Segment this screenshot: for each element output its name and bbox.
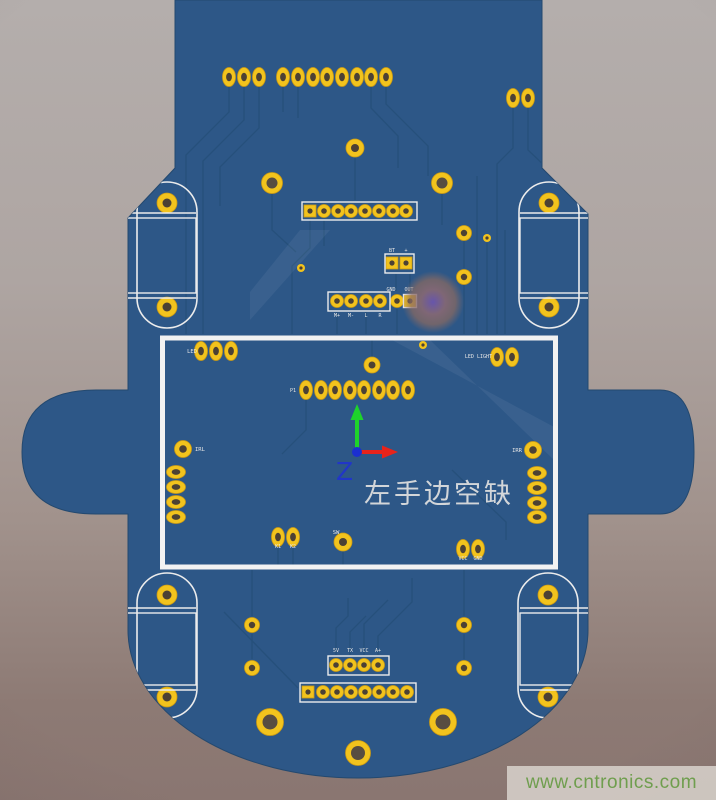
pad-hole (509, 353, 515, 362)
pad-hole (351, 746, 365, 760)
pad-hole (363, 298, 369, 304)
pad-hole (228, 347, 234, 356)
silk-label: L (364, 313, 367, 319)
pad-hole (179, 445, 187, 453)
pad-hole (351, 144, 359, 152)
pad-hole (256, 73, 262, 82)
watermark: www.cntronics.com (507, 766, 716, 800)
pad-hole (390, 689, 396, 695)
silk-label: BT (389, 248, 395, 254)
pad-hole (163, 693, 172, 702)
pad-hole (226, 73, 232, 82)
silk-label: GND (386, 287, 395, 293)
pad-hole (403, 260, 408, 265)
pad-hole (321, 208, 327, 214)
pad-hole (544, 591, 553, 600)
pcb-3d-viewport[interactable]: LEDLED LIGHTIRLIRRSWGNDOUTBT+M+M-LR5VTXV… (0, 0, 716, 800)
silk-label: M+ (334, 313, 340, 319)
pad-hole (263, 715, 278, 730)
pad-hole (375, 662, 381, 668)
pad-hole (510, 94, 516, 103)
z-axis-origin-dot (352, 447, 362, 457)
pad-hole (241, 73, 247, 82)
pad-hole (172, 499, 181, 505)
pad-hole (318, 386, 324, 395)
pad-hole (172, 514, 181, 520)
pad-hole (310, 73, 316, 82)
pad-hole (249, 665, 255, 671)
pad-hole (533, 514, 542, 520)
pad-hole (334, 298, 340, 304)
pad-hole (529, 446, 537, 454)
pad-hole (533, 485, 542, 491)
silk-label: VCC (359, 648, 368, 654)
silk-label: IRR (512, 448, 523, 454)
pad-hole (461, 230, 467, 236)
pad-hole (335, 208, 341, 214)
pad-hole (172, 469, 181, 475)
pad-hole (249, 622, 255, 628)
silk-label: LED LIGHT (465, 354, 492, 360)
pad-hole (376, 386, 382, 395)
pad-hole (533, 470, 542, 476)
pad-hole (333, 662, 339, 668)
pad-hole (339, 73, 345, 82)
pad-hole (163, 199, 172, 208)
silk-label: K2 (290, 544, 296, 550)
pad-hole (198, 347, 204, 356)
silk-label: P1 (290, 388, 296, 394)
pad-hole (213, 347, 219, 356)
pad-hole (394, 298, 400, 304)
pad-hole (368, 73, 374, 82)
pad-hole (348, 208, 354, 214)
pad-hole (332, 386, 338, 395)
board-canvas: LEDLED LIGHTIRLIRRSWGNDOUTBT+M+M-LR5VTXV… (0, 0, 716, 800)
silk-label: TX (347, 648, 353, 654)
pad-hole (383, 73, 389, 82)
silk-label: K1 (275, 544, 281, 550)
z-axis-label: Z (336, 457, 353, 486)
annotation-text: 左手边空缺 (364, 479, 514, 510)
pad-hole (295, 73, 301, 82)
pad-hole (267, 178, 278, 189)
pad-hole (362, 689, 368, 695)
pad-hole (376, 689, 382, 695)
pad-hole (163, 591, 172, 600)
pad-hole (525, 94, 531, 103)
pad-hole (461, 274, 467, 280)
silk-label: M- (348, 313, 354, 319)
pad-hole (377, 298, 383, 304)
pad-hole (303, 386, 309, 395)
pad-hole (533, 500, 542, 506)
pad-hole (404, 689, 410, 695)
pad-hole (405, 386, 411, 395)
pad-hole (172, 484, 181, 490)
pad-hole (544, 693, 553, 702)
pad-hole (545, 303, 554, 312)
pad-hole (460, 545, 466, 554)
via-hole (485, 236, 488, 239)
pad-hole (390, 386, 396, 395)
pad-hole (348, 689, 354, 695)
pad-hole (339, 538, 347, 546)
pad-hole (461, 622, 467, 628)
pad-hole (354, 73, 360, 82)
pad-hole (475, 545, 481, 554)
pad-hole (275, 533, 281, 542)
cursor-highlight-blob (402, 271, 464, 333)
pad-hole (348, 298, 354, 304)
pad-hole (163, 303, 172, 312)
pad-hole (437, 178, 448, 189)
pad-hole (389, 260, 394, 265)
pad-hole (347, 662, 353, 668)
pad-hole (390, 208, 396, 214)
pad-hole (334, 689, 340, 695)
pad-hole (369, 362, 376, 369)
silk-label: SW (333, 530, 340, 536)
watermark-text: www.cntronics.com (526, 772, 697, 794)
pad-hole (403, 208, 409, 214)
silk-label: LED (187, 349, 197, 355)
silk-label: A+ (375, 648, 381, 654)
pad-hole (361, 662, 367, 668)
via-hole (299, 266, 302, 269)
pad-hole (307, 208, 312, 213)
via-hole (421, 343, 424, 346)
pad-hole (545, 199, 554, 208)
pad-hole (362, 208, 368, 214)
pad-hole (280, 73, 286, 82)
pad-hole (461, 665, 467, 671)
pad-hole (347, 386, 353, 395)
pad-hole (436, 715, 451, 730)
silk-label: 5V (333, 648, 339, 654)
silk-label: VCC (458, 556, 467, 562)
pad-hole (494, 353, 500, 362)
pad-hole (361, 386, 367, 395)
silk-label: GND (473, 556, 482, 562)
silk-label: + (404, 248, 407, 254)
pad-hole (376, 208, 382, 214)
pad-hole (305, 689, 310, 694)
pad-hole (324, 73, 330, 82)
silk-label: IRL (195, 447, 206, 453)
pad-hole (320, 689, 326, 695)
pad-hole (290, 533, 296, 542)
